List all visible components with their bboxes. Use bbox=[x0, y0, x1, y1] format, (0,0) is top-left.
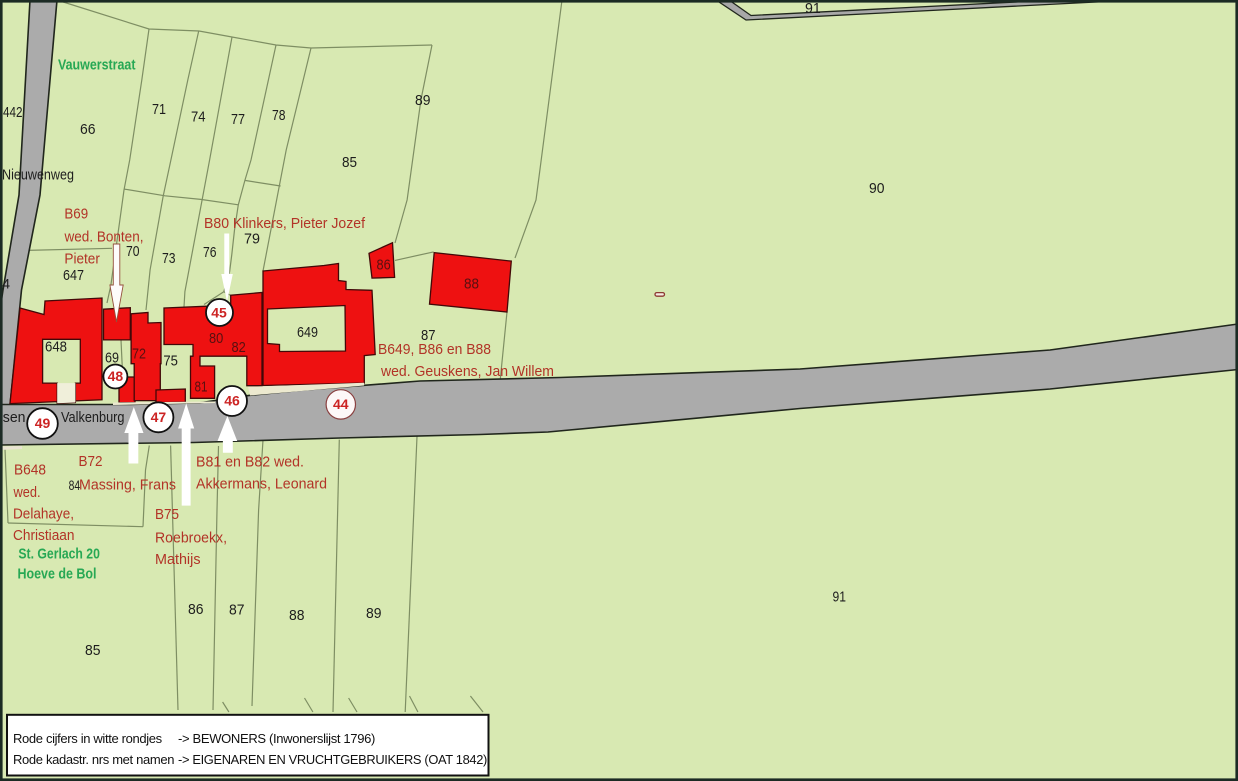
svg-text:Mathijs: Mathijs bbox=[155, 551, 201, 568]
svg-text:B81 en B82 wed.: B81 en B82 wed. bbox=[196, 454, 304, 471]
svg-text:B649, B86 en B88: B649, B86 en B88 bbox=[378, 341, 491, 358]
svg-text:Hoeve de Bol: Hoeve de Bol bbox=[18, 565, 97, 582]
svg-text:Massing, Frans: Massing, Frans bbox=[79, 477, 176, 494]
svg-text:45: 45 bbox=[211, 305, 227, 321]
svg-text:88: 88 bbox=[289, 607, 305, 624]
svg-text:46: 46 bbox=[224, 393, 240, 409]
svg-text:Vauwerstraat: Vauwerstraat bbox=[58, 57, 136, 74]
svg-text:-> EIGENAREN EN VRUCHTGEBRUIKE: -> EIGENAREN EN VRUCHTGEBRUIKERS (OAT 18… bbox=[178, 752, 487, 767]
svg-text:49: 49 bbox=[35, 415, 51, 431]
svg-text:Delahaye,: Delahaye, bbox=[13, 506, 74, 523]
svg-text:85: 85 bbox=[342, 154, 357, 171]
svg-text:-> BEWONERS (Inwonerslijst 179: -> BEWONERS (Inwonerslijst 1796) bbox=[178, 731, 375, 746]
svg-text:66: 66 bbox=[80, 121, 96, 138]
svg-text:Christiaan: Christiaan bbox=[13, 527, 75, 544]
svg-text:79: 79 bbox=[244, 231, 260, 248]
svg-text:649: 649 bbox=[297, 324, 318, 341]
svg-text:88: 88 bbox=[464, 276, 479, 293]
svg-text:wed. Geuskens, Jan Willem: wed. Geuskens, Jan Willem bbox=[380, 363, 554, 380]
svg-text:90: 90 bbox=[869, 180, 885, 197]
svg-text:B72: B72 bbox=[79, 453, 103, 470]
svg-text:B75: B75 bbox=[155, 506, 179, 523]
svg-text:wed.: wed. bbox=[13, 484, 41, 501]
svg-text:89: 89 bbox=[415, 92, 431, 109]
svg-text:86: 86 bbox=[188, 601, 204, 618]
svg-text:wed. Bonten,: wed. Bonten, bbox=[64, 228, 144, 245]
svg-text:76: 76 bbox=[203, 244, 217, 261]
svg-text:648: 648 bbox=[45, 339, 67, 356]
svg-text:91: 91 bbox=[833, 589, 847, 606]
svg-text:sen: sen bbox=[3, 409, 26, 426]
svg-text:47: 47 bbox=[151, 409, 167, 425]
svg-text:89: 89 bbox=[366, 605, 382, 622]
svg-text:Rode kadastr. nrs met namen: Rode kadastr. nrs met namen bbox=[13, 752, 174, 767]
svg-text:Rode cijfers in witte rondjes: Rode cijfers in witte rondjes bbox=[13, 731, 163, 746]
svg-text:Valkenburg: Valkenburg bbox=[61, 409, 125, 426]
svg-text:71: 71 bbox=[152, 101, 166, 118]
svg-text:75: 75 bbox=[163, 353, 178, 370]
svg-text:74: 74 bbox=[191, 109, 206, 126]
svg-text:86: 86 bbox=[377, 257, 391, 274]
svg-text:77: 77 bbox=[231, 111, 245, 128]
svg-text:73: 73 bbox=[162, 250, 176, 267]
svg-text:72: 72 bbox=[132, 346, 146, 363]
svg-text:85: 85 bbox=[85, 642, 101, 659]
svg-text:82: 82 bbox=[232, 339, 246, 356]
svg-text:69: 69 bbox=[105, 350, 119, 367]
svg-text:70: 70 bbox=[126, 243, 140, 260]
svg-text:B648: B648 bbox=[14, 461, 46, 478]
svg-text:87: 87 bbox=[229, 602, 245, 619]
svg-text:442: 442 bbox=[3, 104, 23, 121]
svg-text:80: 80 bbox=[209, 330, 223, 347]
svg-text:647: 647 bbox=[63, 267, 84, 284]
svg-text:B80 Klinkers, Pieter Jozef: B80 Klinkers, Pieter Jozef bbox=[204, 215, 366, 232]
svg-text:44: 44 bbox=[333, 396, 349, 412]
svg-text:Nieuwenweg: Nieuwenweg bbox=[2, 167, 74, 184]
svg-text:Roebroekx,: Roebroekx, bbox=[155, 530, 227, 547]
svg-text:St. Gerlach 20: St. Gerlach 20 bbox=[18, 546, 100, 563]
svg-text:Akkermans, Leonard: Akkermans, Leonard bbox=[196, 476, 327, 493]
svg-text:78: 78 bbox=[272, 107, 286, 124]
svg-text:Pieter: Pieter bbox=[64, 250, 100, 267]
svg-text:48: 48 bbox=[108, 368, 124, 384]
svg-text:81: 81 bbox=[195, 379, 208, 396]
svg-text:B69: B69 bbox=[64, 205, 88, 222]
